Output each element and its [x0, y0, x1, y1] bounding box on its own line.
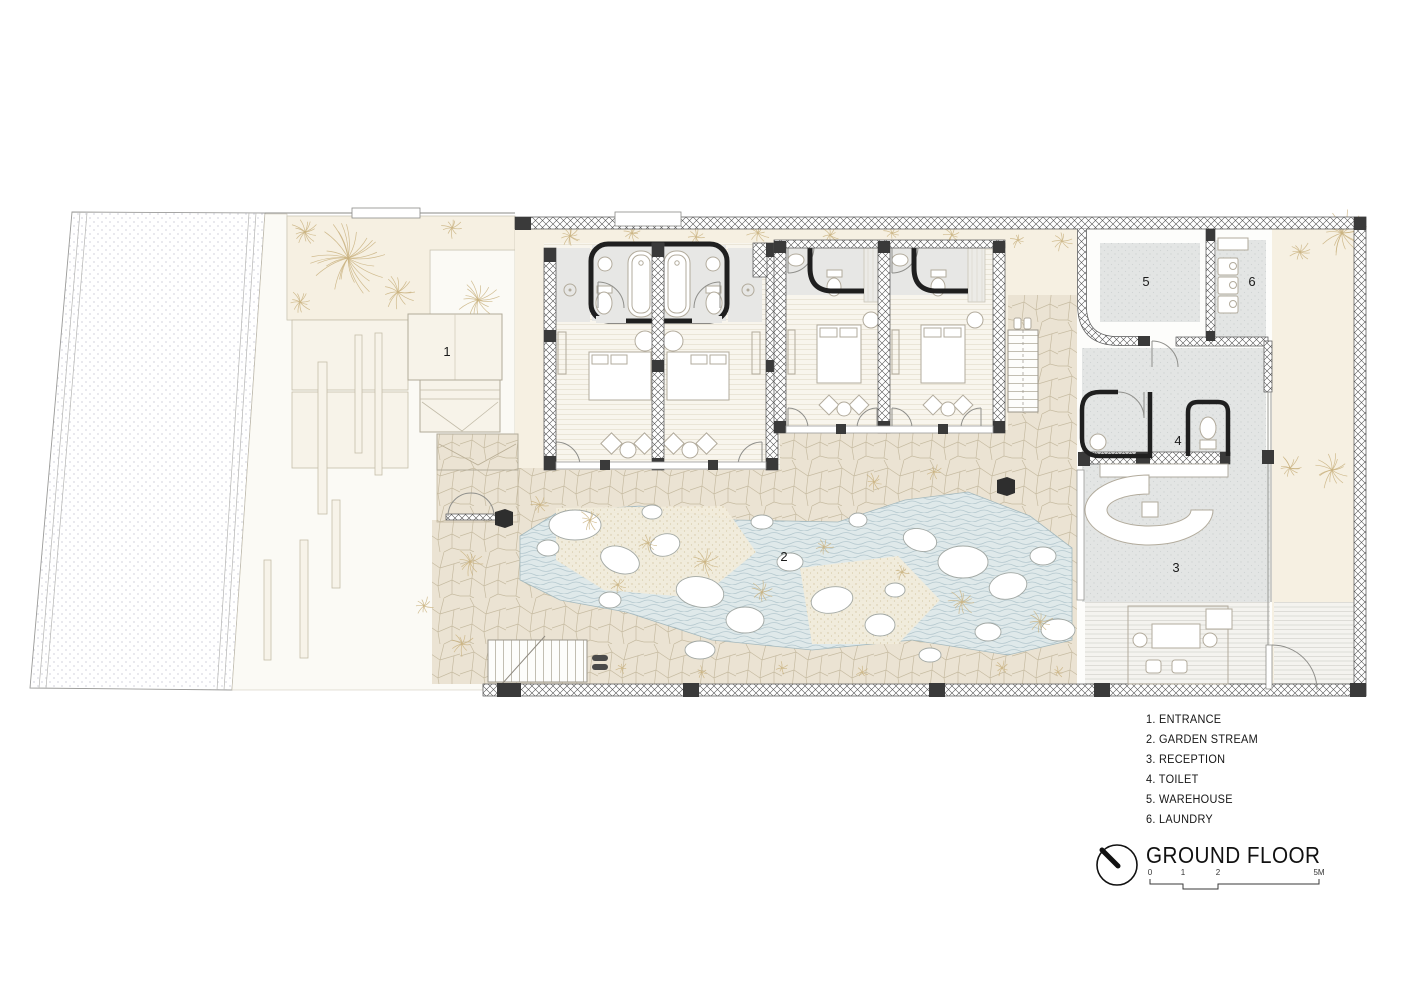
scale-bar: 0 1 2 5M: [1142, 862, 1342, 894]
room-label-reception: 3: [1172, 560, 1179, 575]
front-gate: [352, 208, 420, 218]
entry-column: [495, 509, 513, 528]
room-label-entrance: 1: [443, 344, 450, 359]
legend: 1. ENTRANCE 2. GARDEN STREAM 3. RECEPTIO…: [1146, 710, 1264, 830]
room-label-garden-stream: 2: [780, 549, 787, 564]
legend-item-entrance: 1. ENTRANCE: [1146, 710, 1258, 730]
north-arrow-icon: [1094, 842, 1140, 888]
legend-item-reception: 3. RECEPTION: [1146, 750, 1258, 770]
room-label-toilet: 4: [1174, 433, 1181, 448]
garden-column: [997, 477, 1015, 496]
floor-plan-canvas: 1 2 3 4 5 6 1. ENTRANCE 2. GARDEN STREAM…: [0, 0, 1414, 1000]
room-label-laundry: 6: [1248, 274, 1255, 289]
scale-tick-0: 0: [1148, 868, 1153, 877]
scale-tick-1: 1: [1181, 868, 1186, 877]
legend-item-toilet: 4. TOILET: [1146, 770, 1258, 790]
legend-item-garden-stream: 2. GARDEN STREAM: [1146, 730, 1258, 750]
scale-tick-5m: 5M: [1313, 868, 1324, 877]
entry-step-upper: [420, 380, 500, 432]
title-block: GROUND FLOOR 0 1 2 5M: [1094, 840, 1354, 900]
staircase-east: [1008, 318, 1038, 412]
legend-item-warehouse: 5. WAREHOUSE: [1146, 790, 1258, 810]
legend-item-laundry: 6. LAUNDRY: [1146, 810, 1258, 830]
room-label-warehouse: 5: [1142, 274, 1149, 289]
scale-tick-2: 2: [1216, 868, 1221, 877]
adjacent-road: [30, 212, 265, 690]
